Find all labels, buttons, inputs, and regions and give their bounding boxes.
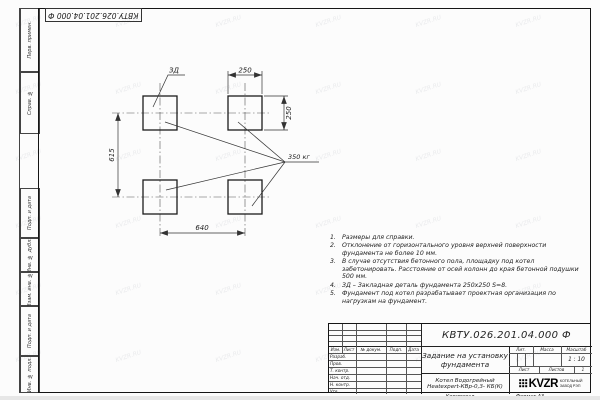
kvzr-caption-line2: ЗАВОД РЭП — [560, 384, 583, 388]
stamp-mass-label: Масса — [533, 346, 561, 353]
stamp-sheets-value: 1 — [574, 366, 592, 373]
embed-detail-label: ЗД — [169, 67, 179, 75]
stamp-row-utv: Утв. — [330, 389, 356, 395]
note-text: Размеры для справки. — [342, 234, 582, 241]
page-edge-shadow — [0, 396, 600, 400]
load-label: 350 кг — [288, 153, 310, 161]
dimension-label-bottom: 640 — [195, 224, 209, 232]
stamp-col-data: Дата — [406, 346, 421, 353]
note-number: 2. — [330, 242, 342, 257]
kvzr-caption-line1: КОТЕЛЬНЫЙ — [560, 379, 583, 383]
foundation-pads — [143, 96, 262, 214]
stamp-logo-cell: KVZR КОТЕЛЬНЫЙ ЗАВОД РЭП — [509, 373, 592, 394]
stamp-row-prov: Пров. — [330, 361, 356, 368]
stamp-row-tkontr: Т. контр. — [330, 368, 356, 375]
stamp-sheet-label: Лист — [509, 366, 539, 373]
stamp-scale-label: Масштаб — [561, 346, 592, 353]
note-item: 2.Отклонение от горизонтального уровня в… — [330, 242, 582, 257]
stamp-product-line2: Heatexpert-КВр-0,3- КБ(К) — [427, 384, 503, 390]
title-block: Изм. Лист № докум. Подп. Дата Разраб. Пр… — [328, 323, 591, 393]
stamp-doc-number: КВТУ.026.201.04.000 Ф — [421, 324, 592, 346]
stamp-col-list: Лист — [342, 346, 356, 353]
stamp-row-nachotd: Нач. отд. — [330, 375, 356, 382]
note-text: В случае отсутствия бетонного пола, площ… — [342, 258, 582, 280]
stamp-lit-label: Лит. — [509, 346, 533, 353]
stamp-col-izm: Изм. — [329, 346, 342, 353]
center-lines — [112, 83, 270, 238]
kvzr-grid-icon — [519, 379, 528, 388]
stamp-col-podp: Подп. — [386, 346, 406, 353]
kvzr-logo-text: KVZR — [529, 378, 558, 390]
note-text: Фундамент под котел разрабатывает проект… — [342, 290, 582, 305]
kvzr-logo-caption: КОТЕЛЬНЫЙ ЗАВОД РЭП — [560, 379, 583, 387]
note-number: 4. — [330, 282, 342, 289]
dimension-label-right: 250 — [285, 106, 293, 120]
notes-block: 1.Размеры для справки. 2.Отклонение от г… — [330, 234, 582, 306]
dimension-label-top: 250 — [238, 67, 252, 75]
note-item: 3.В случае отсутствия бетонного пола, пл… — [330, 258, 582, 280]
stamp-scale-value: 1 : 10 — [561, 353, 592, 366]
stamp-row-razrab: Разраб. — [330, 354, 356, 361]
note-number: 5. — [330, 290, 342, 305]
note-text: Отклонение от горизонтального уровня вер… — [342, 242, 582, 257]
stamp-title: Задание на установку фундамента — [422, 347, 508, 373]
leader-lines — [153, 75, 319, 206]
dimension-label-left: 615 — [108, 148, 116, 162]
note-number: 3. — [330, 258, 342, 280]
note-item: 5.Фундамент под котел разрабатывает прое… — [330, 290, 582, 305]
note-item: 1.Размеры для справки. — [330, 234, 582, 241]
note-text: ЗД – Закладная деталь фундамента 250х250… — [342, 282, 582, 289]
note-number: 1. — [330, 234, 342, 241]
stamp-sheets-label: Листов — [539, 366, 574, 373]
stamp-col-docnum: № докум. — [356, 346, 386, 353]
note-item: 4.ЗД – Закладная деталь фундамента 250х2… — [330, 282, 582, 289]
